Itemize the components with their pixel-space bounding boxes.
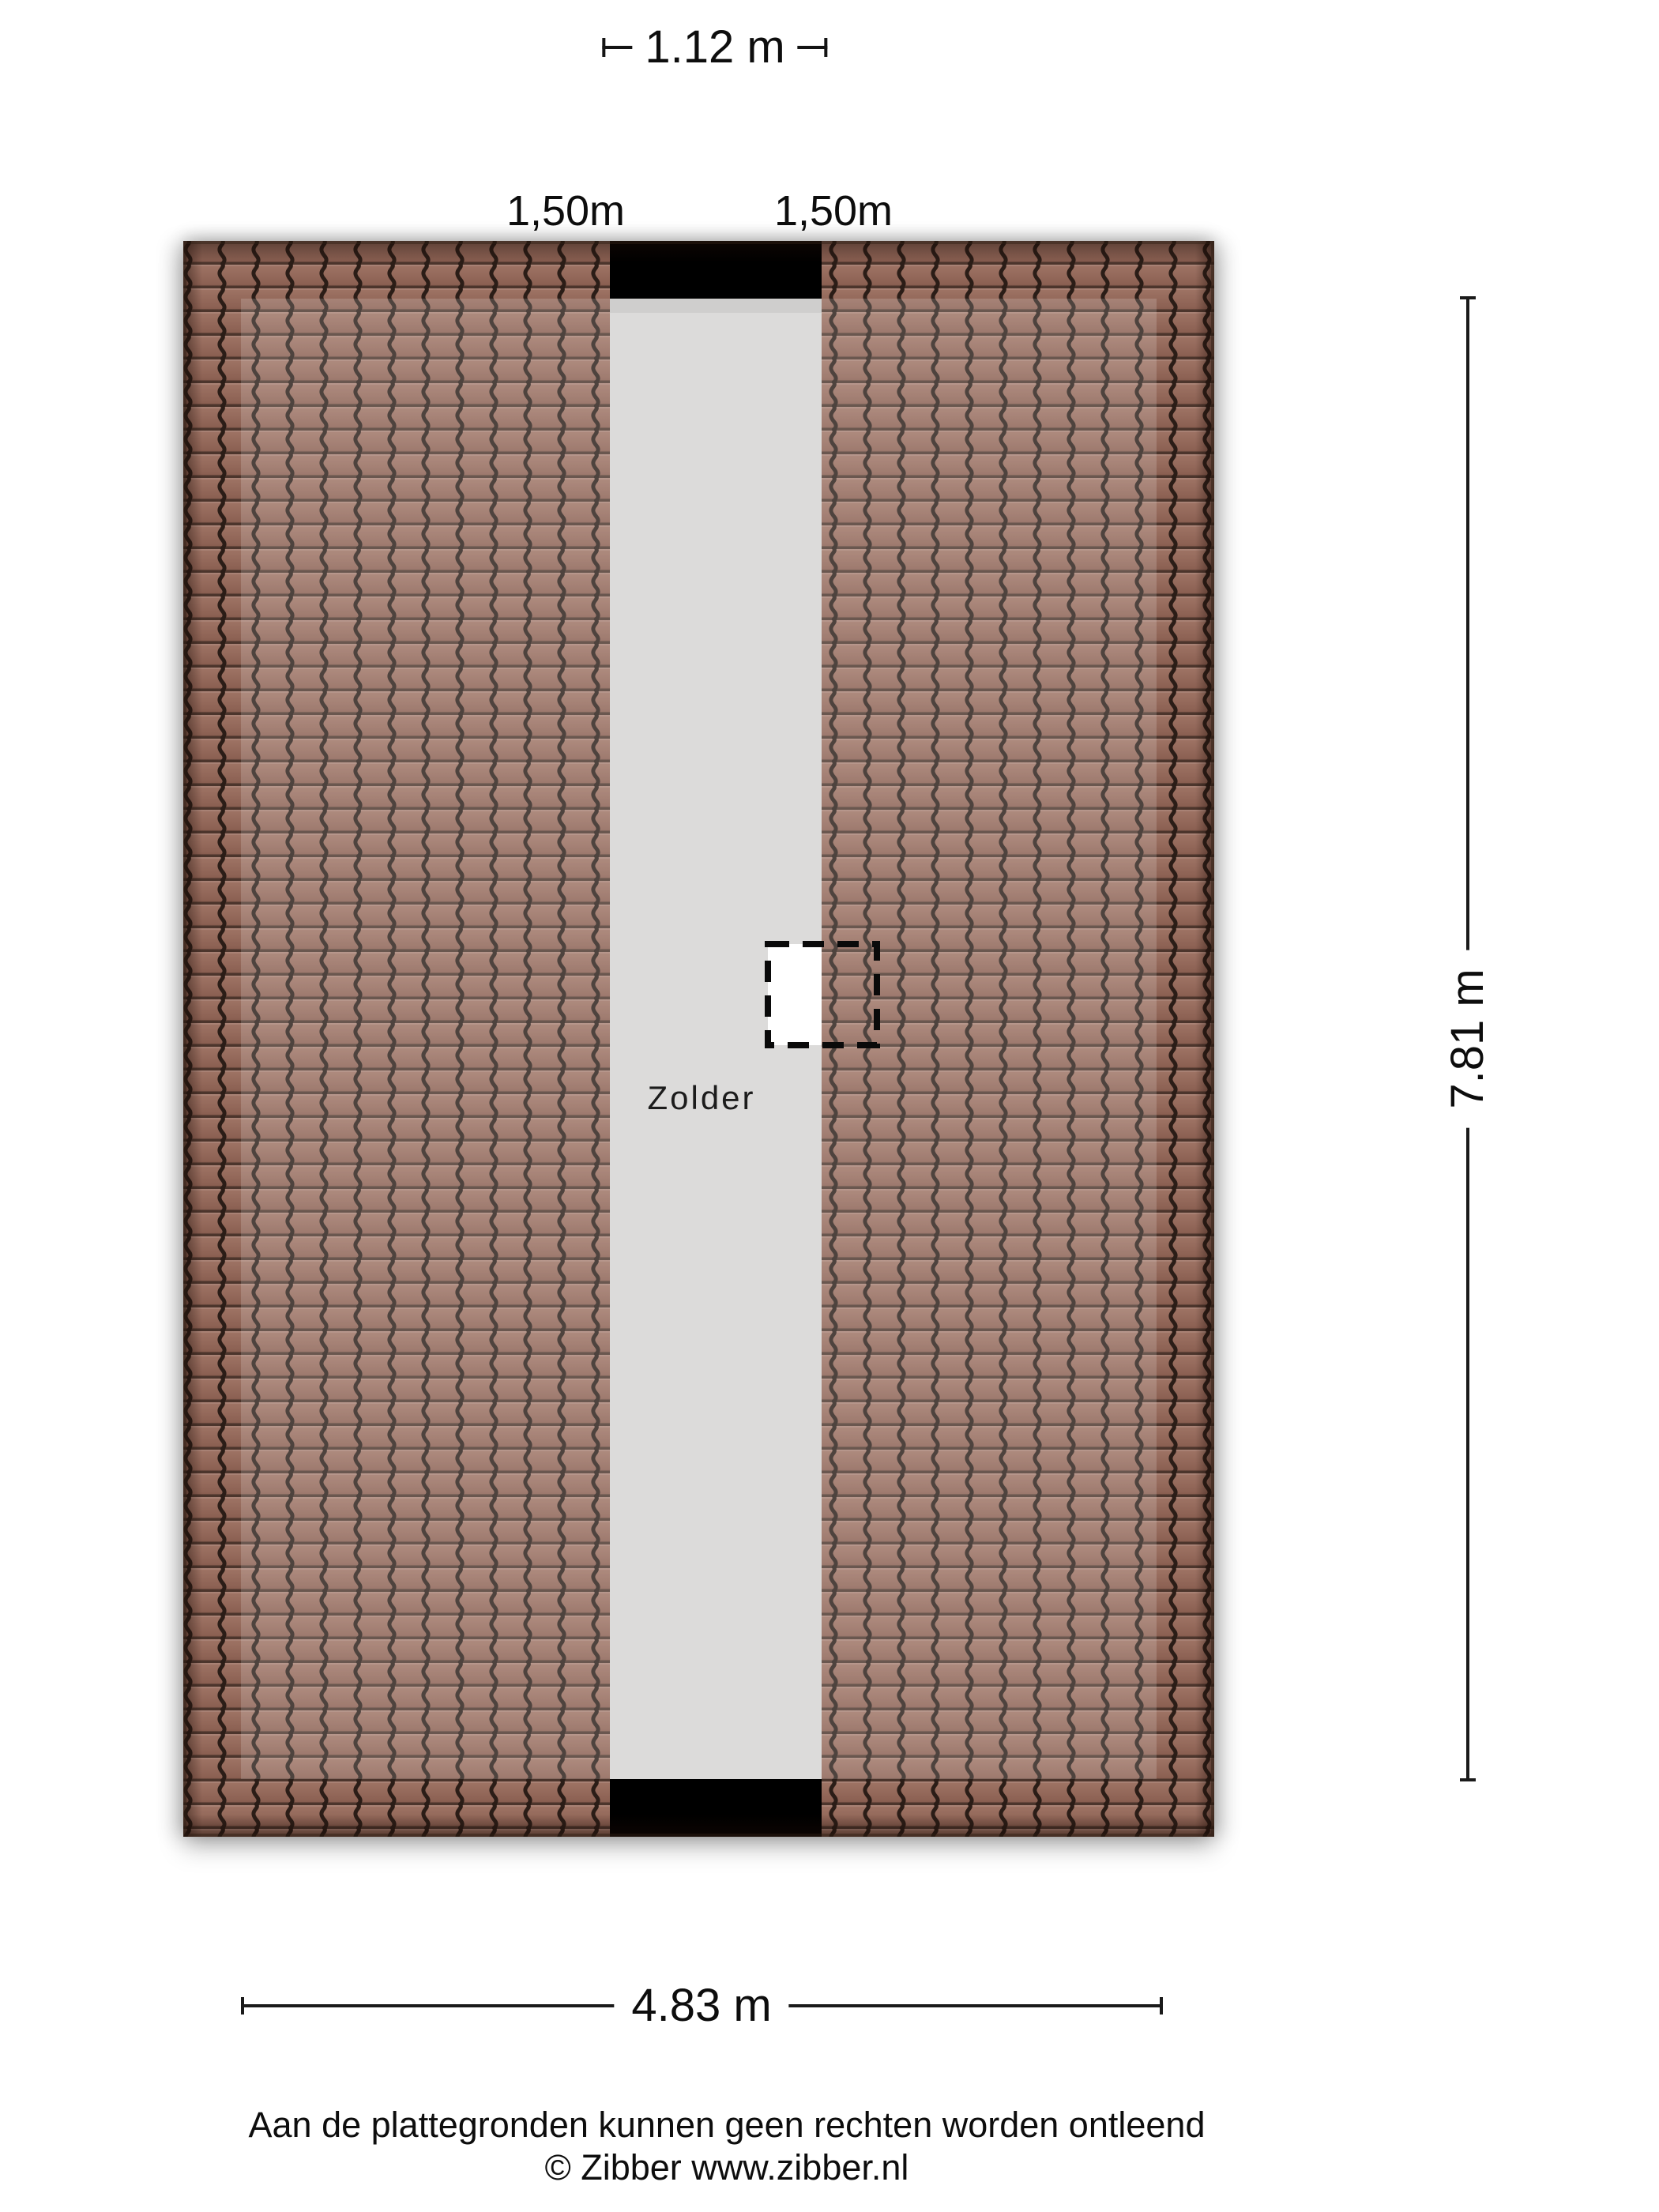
- dimension-tick-left-icon: [602, 38, 632, 57]
- edge-shade-bottom: [183, 1815, 1214, 1837]
- dimension-bottom-label: 4.83 m: [614, 1983, 788, 2029]
- footer-disclaimer: Aan de plattegronden kunnen geen rechten…: [249, 2104, 1206, 2146]
- room-label: Zolder: [647, 1079, 755, 1117]
- roof-width-right-label: 1,50m: [774, 190, 893, 232]
- floorplan-canvas: Zolder: [183, 241, 1214, 1837]
- skylight-fill: [768, 944, 822, 1045]
- room-highlight-left: [241, 299, 610, 1779]
- room-highlight-right: [822, 299, 1157, 1779]
- floorplan-page: 1.12 m 1,50m 1,50m: [0, 0, 1659, 2212]
- footer-copyright: © Zibber www.zibber.nl: [249, 2146, 1206, 2189]
- edge-shade-top: [183, 241, 1214, 263]
- dimension-top: 1.12 m: [602, 24, 827, 70]
- floorplan-drawing: [183, 241, 1214, 1837]
- floor-shadow: [610, 299, 822, 313]
- dimension-top-label: 1.12 m: [645, 24, 784, 70]
- footer: Aan de plattegronden kunnen geen rechten…: [249, 2104, 1206, 2189]
- dimension-tick-right-icon: [798, 38, 828, 57]
- dimension-right-label: 7.81 m: [1445, 950, 1491, 1127]
- roof-width-left-label: 1,50m: [506, 190, 625, 232]
